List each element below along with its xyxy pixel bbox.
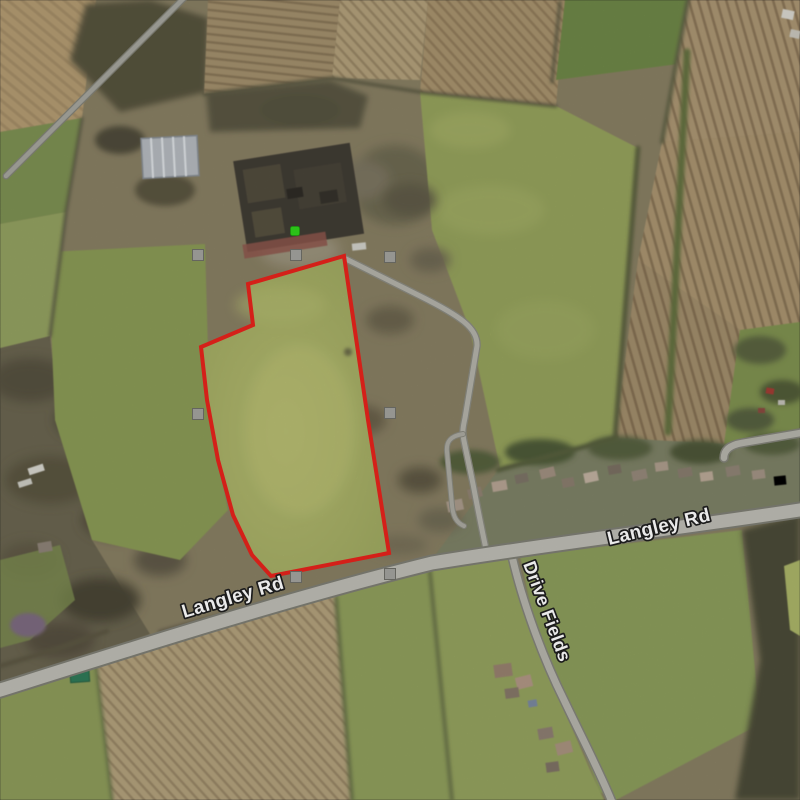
map-viewport[interactable]: Langley Rd Langley Rd Drive Fields <box>0 0 800 800</box>
imagery-grain <box>0 0 800 800</box>
satellite-map-canvas[interactable]: Langley Rd Langley Rd Drive Fields <box>0 0 800 800</box>
